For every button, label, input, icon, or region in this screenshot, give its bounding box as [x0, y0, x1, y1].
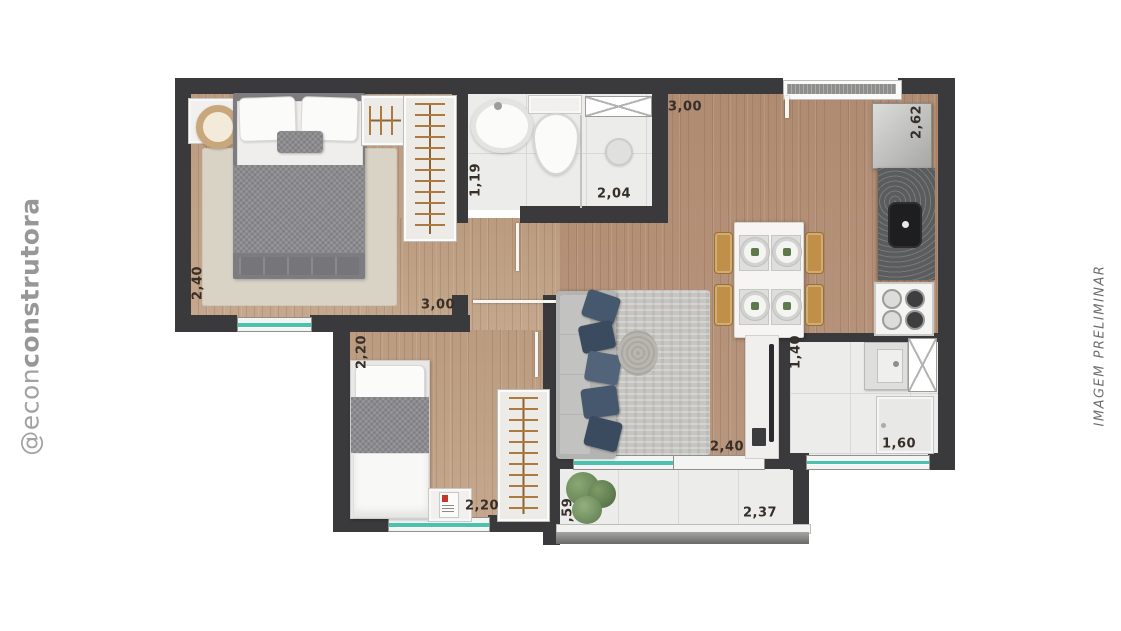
wall-bedroom1-bottom-a: [175, 315, 237, 332]
bed-duvet: [353, 453, 429, 518]
bedroom2-door-leaf: [535, 332, 538, 377]
dim-kitchen-pass: 1,40: [789, 335, 804, 369]
faucet-icon: [902, 221, 909, 228]
tv: [769, 344, 774, 442]
burner-icon: [882, 310, 902, 330]
dim-balcony-length: 2,37: [743, 506, 777, 521]
laundry-sink: [864, 342, 908, 390]
bedroom2-wardrobe: [498, 390, 549, 521]
preliminary-image-watermark: IMAGEM PRELIMINAR: [1093, 166, 1108, 526]
place-setting: [773, 292, 801, 320]
sofa-pillow: [577, 320, 616, 354]
dining-chair: [714, 284, 733, 326]
sofa-throw: [618, 330, 658, 376]
dining-table: [734, 222, 804, 338]
faucet-icon: [494, 102, 502, 110]
burner-icon: [905, 289, 925, 309]
bedroom1-window: [237, 317, 312, 332]
brand-bold: construtora: [16, 197, 45, 368]
shower-divider: [580, 115, 582, 208]
dim-living-bottom: 2,40: [710, 440, 744, 455]
brand-light: @econ: [16, 368, 45, 456]
toilet-cabinet: [528, 95, 582, 114]
balcony-railing: [556, 532, 809, 544]
brand-watermark: @econconstrutora: [16, 147, 45, 507]
wardrobe-top: [362, 96, 408, 145]
kitchen-sink: [888, 202, 922, 248]
sofa-pillow: [584, 350, 623, 385]
place-setting: [773, 238, 801, 266]
place-setting: [741, 238, 769, 266]
media-box: [752, 428, 766, 446]
dim-bedroom2-width: 2,20: [355, 335, 370, 369]
entry-door-leaf: [785, 96, 789, 118]
burner-icon: [882, 289, 902, 309]
wall-bathroom-bottom: [520, 206, 668, 223]
dim-bedroom2-length: 2,20: [465, 499, 499, 514]
wall-bedroom2-top: [333, 318, 470, 332]
dim-living-top: 3,00: [668, 100, 702, 115]
place-setting: [741, 292, 769, 320]
bathroom-door-leaf: [516, 223, 519, 271]
laundry-sink-basin: [877, 349, 903, 383]
dining-chair: [805, 232, 824, 274]
dining-chair: [805, 284, 824, 326]
book-cover-detail: [442, 495, 448, 502]
single-bed: [350, 360, 430, 519]
dim-bedroom1-width: 2,40: [191, 266, 206, 300]
dining-chair: [714, 232, 733, 274]
bed-accent-pillow: [277, 131, 323, 153]
bedroom1-door-leaf: [473, 300, 558, 303]
dim-balcony-depth: ,59: [561, 498, 576, 523]
bed-blanket: [233, 165, 365, 253]
plant-foliage: [572, 496, 602, 524]
book-text-lines: [442, 505, 454, 513]
book: [439, 492, 459, 518]
bathroom-sink: [471, 99, 533, 153]
entry-granite: [787, 84, 896, 94]
wall-bedroom2-left: [333, 318, 350, 532]
shower-drain: [605, 138, 633, 166]
bed-foot-bench: [239, 257, 359, 275]
tv-panel: [745, 335, 779, 459]
kitchen-counter: [878, 168, 935, 280]
dim-kitchen-depth: 2,62: [910, 105, 925, 139]
wall-laundry-bottom-a: [790, 453, 806, 470]
dim-bathroom-width: 1,19: [469, 163, 484, 197]
burner-icon: [905, 310, 925, 330]
wall-laundry-bottom-b: [928, 453, 955, 470]
floor-plan: 2,40 3,00 1,19 2,04 3,00 2,62 1,40 2,40 …: [0, 0, 1121, 631]
wardrobe-right: [404, 96, 456, 241]
bed-blanket: [351, 397, 429, 453]
entry-threshold: [783, 80, 902, 100]
dim-laundry-width: 1,60: [882, 437, 916, 452]
bathroom-shaft: [585, 96, 652, 117]
washer-knob: [881, 423, 886, 428]
sofa: [556, 291, 616, 459]
double-bed: [233, 93, 365, 279]
sofa-pillow: [580, 385, 620, 420]
wall-bathroom-right: [652, 93, 668, 223]
dim-bathroom-length: 2,04: [597, 187, 631, 202]
stove: [874, 282, 934, 336]
dim-bedroom1-length: 3,00: [421, 298, 455, 313]
laundry-shaft: [908, 338, 937, 392]
laundry-window: [806, 455, 930, 470]
faucet-icon: [893, 361, 899, 367]
wall-top-left: [175, 78, 783, 94]
wall-right: [938, 78, 955, 470]
